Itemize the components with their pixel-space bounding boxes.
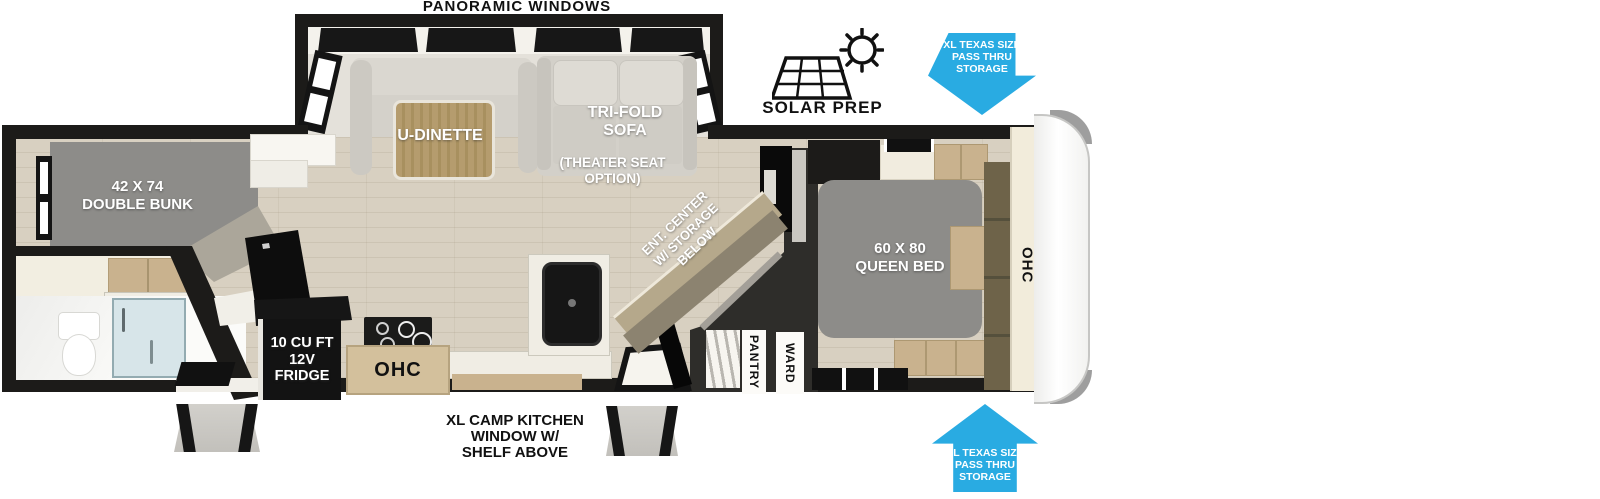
entry-step	[606, 406, 678, 456]
cabinet-door-line	[925, 341, 927, 375]
bedroom-bottom-windows	[812, 368, 908, 390]
bedroom-wall-trim	[792, 150, 806, 242]
pantry: PANTRY	[742, 330, 766, 394]
bedroom-top-window	[884, 139, 934, 152]
bedroom-wardrobe-column	[984, 162, 1010, 390]
bedroom-cabinet-tan	[934, 144, 988, 180]
burner	[398, 321, 415, 338]
pantry-shelves	[706, 330, 740, 388]
tv-label-tick	[262, 243, 270, 249]
solar-panel	[772, 58, 850, 98]
bedroom-front-wall	[808, 140, 880, 184]
rv-floorplan: PANORAMIC WINDOWS	[0, 0, 1600, 499]
fridge-label: 10 CU FT 12V FRIDGE	[263, 327, 341, 393]
ohc-kitchen-cabinet: OHC	[346, 345, 450, 395]
bath-door-mat	[175, 362, 236, 386]
solar-prep-icon	[772, 28, 884, 104]
pantry-label: PANTRY	[742, 330, 766, 394]
entry-step	[174, 404, 260, 452]
cabinet-door-line	[955, 341, 957, 375]
sink-drain	[568, 299, 576, 307]
kitchen-lower-cabinets	[452, 374, 582, 390]
ward-label: WARD	[776, 332, 804, 394]
wardrobe-hall: WARD	[776, 332, 804, 394]
kitchen-sink	[542, 262, 602, 346]
wardrobe-door-line	[984, 218, 1010, 221]
window-mullion	[874, 368, 878, 390]
sun-icon	[849, 37, 875, 63]
wardrobe-door-line	[984, 334, 1010, 337]
tv-panel	[245, 230, 310, 310]
window-mullion	[842, 368, 846, 390]
wardrobe-door-line	[984, 276, 1010, 279]
ohc-kitchen-label: OHC	[348, 347, 448, 393]
front-cap	[1034, 114, 1090, 404]
fridge: 10 CU FT 12V FRIDGE	[258, 319, 341, 400]
cabinet-door-line	[960, 145, 962, 179]
burner	[376, 322, 389, 335]
